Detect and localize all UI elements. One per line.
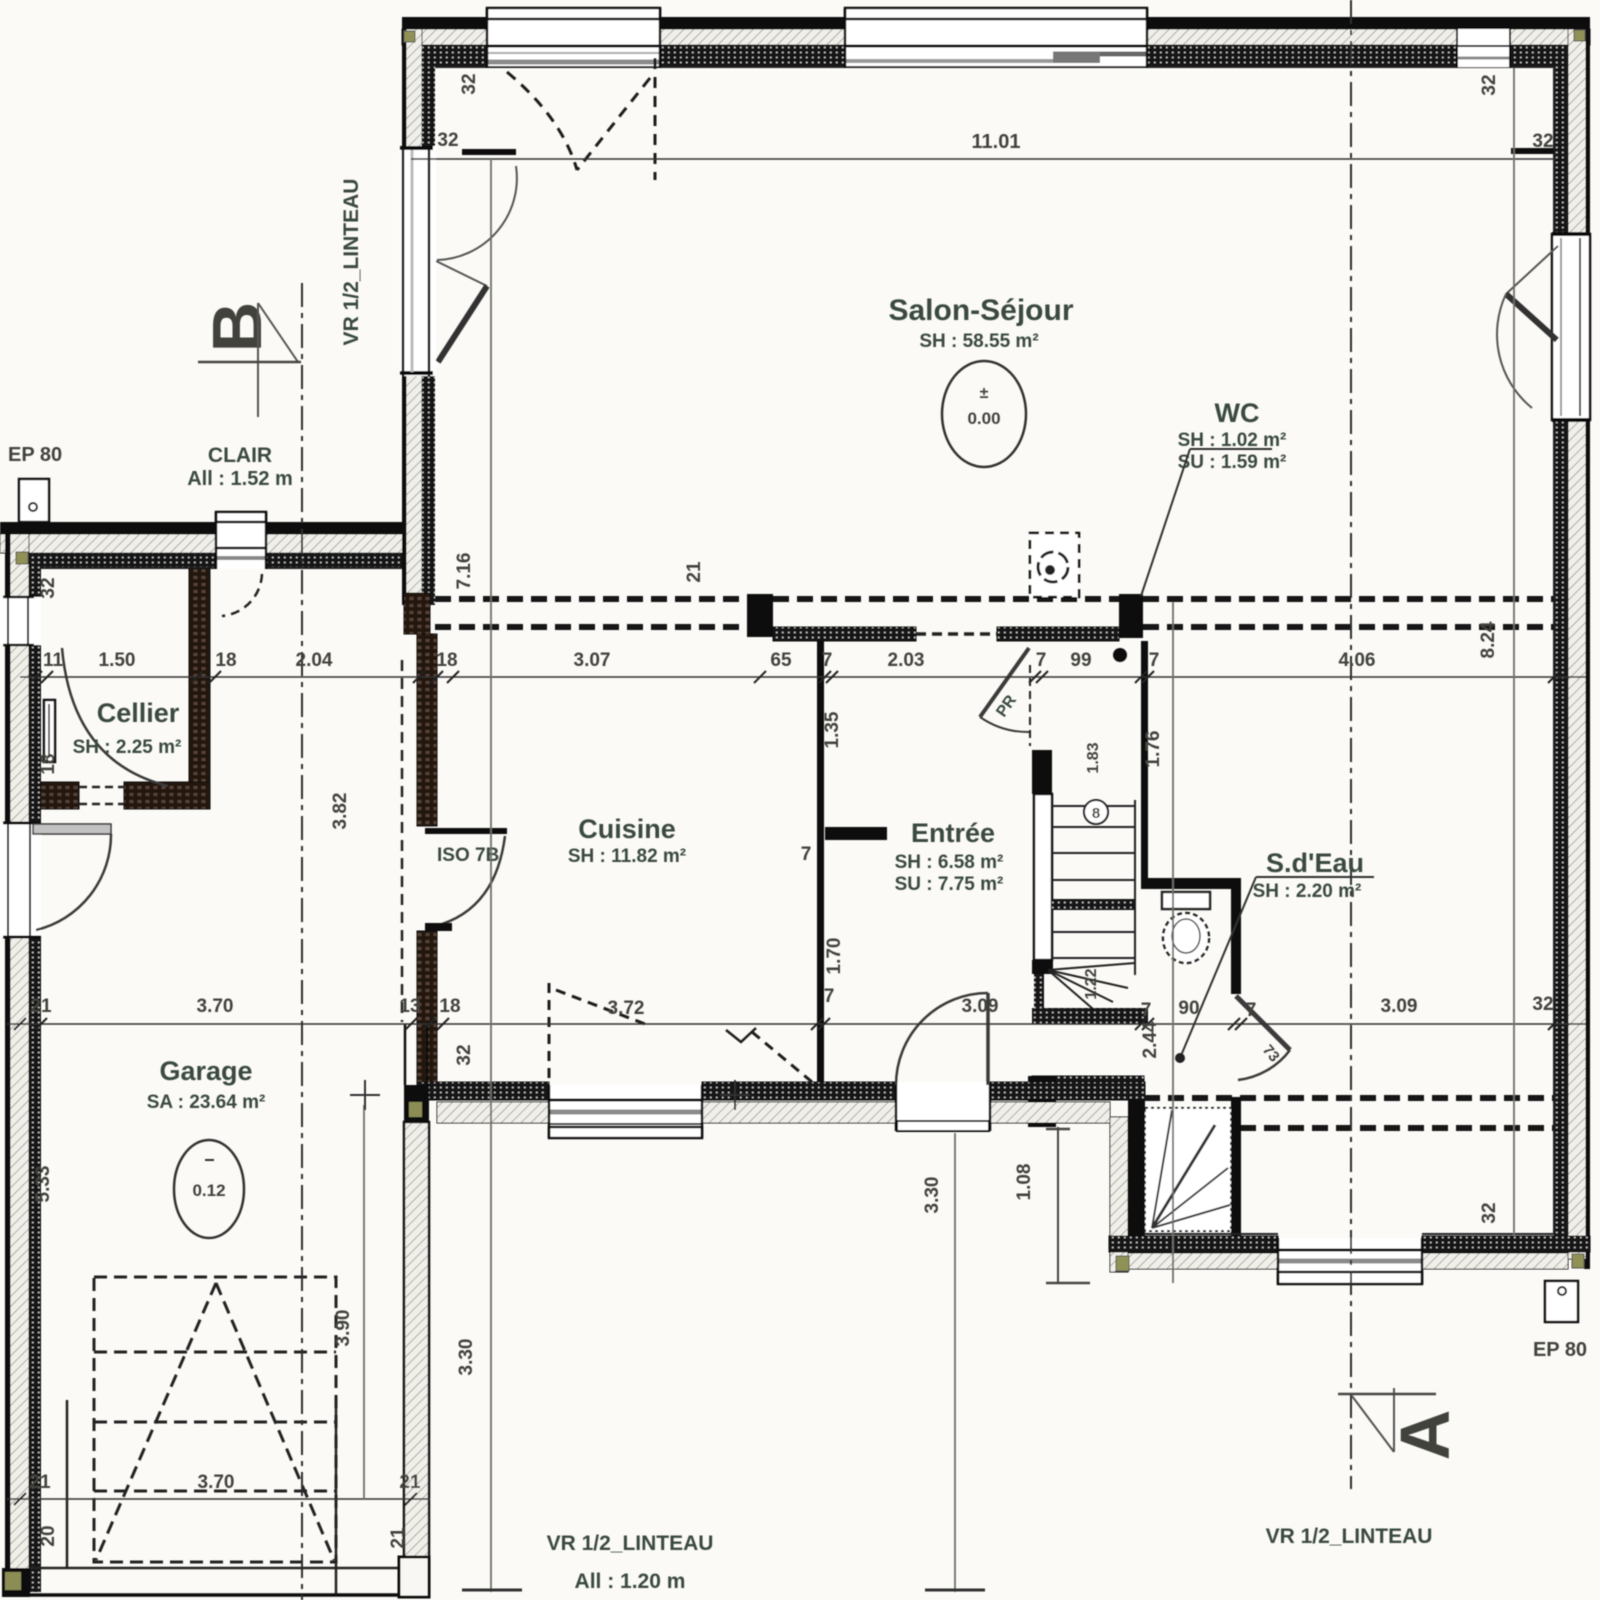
svg-text:SH : 2.20 m²: SH : 2.20 m² [1253,881,1362,902]
svg-text:VR 1/2_LINTEAU: VR 1/2_LINTEAU [340,179,363,346]
svg-text:Salon-Séjour: Salon-Séjour [888,294,1073,327]
svg-text:SH : 11.82 m²: SH : 11.82 m² [568,846,686,867]
svg-text:32: 32 [437,130,458,151]
svg-text:20: 20 [38,1525,59,1546]
svg-text:VR 1/2_LINTEAU: VR 1/2_LINTEAU [547,1532,714,1555]
svg-text:1.76: 1.76 [1143,731,1164,768]
svg-text:SA : 23.64 m²: SA : 23.64 m² [147,1092,266,1113]
svg-text:18: 18 [439,996,460,1017]
svg-text:3.30: 3.30 [456,1339,477,1376]
svg-text:WC: WC [1215,398,1260,428]
svg-text:3.70: 3.70 [198,1472,235,1493]
svg-text:32: 32 [38,577,59,598]
svg-text:32: 32 [454,1044,475,1065]
svg-text:3.72: 3.72 [608,998,645,1019]
svg-text:8: 8 [1092,805,1100,822]
svg-text:11: 11 [43,650,64,671]
svg-text:32: 32 [459,73,480,94]
svg-text:21: 21 [399,1472,421,1493]
svg-text:21: 21 [29,1472,51,1493]
svg-text:SH : 58.55 m²: SH : 58.55 m² [919,331,1038,352]
svg-text:8.24: 8.24 [1478,621,1499,658]
svg-text:ISO 7B: ISO 7B [437,845,499,866]
svg-text:7: 7 [1036,650,1047,671]
svg-text:2.44: 2.44 [1140,1021,1161,1058]
svg-text:1.22: 1.22 [1083,968,1100,999]
svg-text:B: B [198,302,276,353]
svg-text:2.04: 2.04 [296,650,333,671]
svg-text:3.82: 3.82 [330,793,351,830]
svg-text:1.35: 1.35 [822,711,843,748]
svg-text:99: 99 [1070,650,1091,671]
svg-text:1.83: 1.83 [1085,742,1102,773]
svg-text:7: 7 [1246,1000,1257,1021]
svg-text:All : 1.52 m: All : 1.52 m [187,468,293,490]
svg-text:2.03: 2.03 [888,650,925,671]
svg-text:SH : 6.58 m²: SH : 6.58 m² [895,852,1004,873]
svg-text:SU : 7.75 m²: SU : 7.75 m² [895,874,1004,895]
svg-text:EP 80: EP 80 [1533,1339,1587,1361]
svg-text:EP 80: EP 80 [8,444,62,466]
svg-text:CLAIR: CLAIR [208,444,272,467]
svg-text:21: 21 [30,996,52,1017]
svg-text:18: 18 [215,650,236,671]
svg-text:SU : 1.59 m²: SU : 1.59 m² [1178,452,1287,473]
svg-text:7: 7 [822,650,833,671]
svg-text:3.07: 3.07 [574,650,611,671]
svg-text:0.00: 0.00 [967,409,1000,428]
svg-text:0.12: 0.12 [192,1181,225,1200]
svg-text:1.70: 1.70 [824,938,845,975]
svg-text:3.09: 3.09 [1381,996,1418,1017]
svg-text:All : 1.20 m: All : 1.20 m [575,1570,686,1593]
svg-text:3.30: 3.30 [922,1177,943,1214]
svg-text:3.70: 3.70 [197,996,234,1017]
svg-text:SH : 2.25 m²: SH : 2.25 m² [73,737,182,758]
svg-text:Entrée: Entrée [911,818,995,848]
svg-text:7: 7 [1149,650,1160,671]
svg-text:SH : 1.02 m²: SH : 1.02 m² [1178,430,1287,451]
svg-text:A: A [1386,1410,1464,1461]
svg-text:7: 7 [824,986,835,1007]
svg-text:7: 7 [801,844,812,865]
svg-text:Cellier: Cellier [97,698,180,728]
svg-text:32: 32 [1532,994,1553,1015]
svg-text:18: 18 [436,650,457,671]
svg-text:13: 13 [399,996,420,1017]
svg-text:7.16: 7.16 [454,553,475,590]
svg-text:Cuisine: Cuisine [578,814,676,844]
svg-text:3.90: 3.90 [333,1310,354,1347]
svg-text:11.01: 11.01 [972,131,1021,153]
svg-text:5.33: 5.33 [33,1166,54,1203]
svg-text:32: 32 [1532,131,1553,152]
svg-text:3.09: 3.09 [962,996,999,1017]
svg-text:S.d'Eau: S.d'Eau [1266,848,1364,878]
svg-text:90: 90 [1178,998,1199,1019]
svg-text:21: 21 [388,1527,409,1549]
svg-text:±: ± [980,385,989,402]
svg-text:32: 32 [1479,74,1500,95]
svg-text:4.06: 4.06 [1339,650,1376,671]
svg-text:VR 1/2_LINTEAU: VR 1/2_LINTEAU [1266,1525,1433,1548]
svg-text:1.50: 1.50 [99,650,136,671]
svg-text:65: 65 [770,650,792,671]
svg-text:32: 32 [1479,1202,1500,1223]
svg-text:21: 21 [684,561,705,583]
svg-text:Garage: Garage [159,1056,252,1086]
svg-text:1.08: 1.08 [1014,1164,1035,1201]
svg-text:18: 18 [38,753,59,774]
svg-text:7: 7 [1141,1000,1152,1021]
